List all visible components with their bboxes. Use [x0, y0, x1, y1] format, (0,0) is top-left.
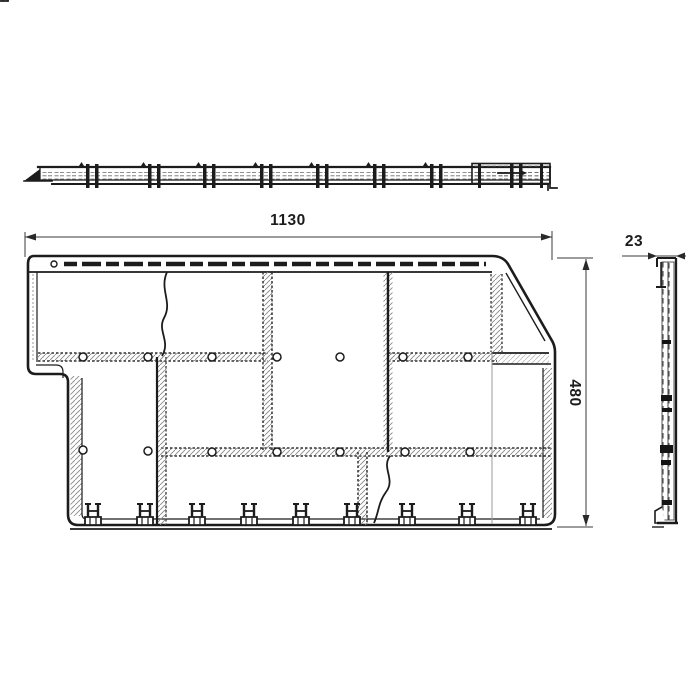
height-dimension-label: 480: [566, 378, 582, 408]
front-view: [0, 0, 555, 529]
width-dimension-label: 1130: [258, 213, 318, 229]
top-view: [24, 162, 557, 190]
drawing-canvas: 1130 480 23: [0, 0, 700, 700]
front-outline: [28, 256, 555, 525]
panel-drawing: [0, 0, 700, 700]
depth-dimension-label: 23: [621, 234, 647, 250]
side-view: [652, 258, 678, 527]
